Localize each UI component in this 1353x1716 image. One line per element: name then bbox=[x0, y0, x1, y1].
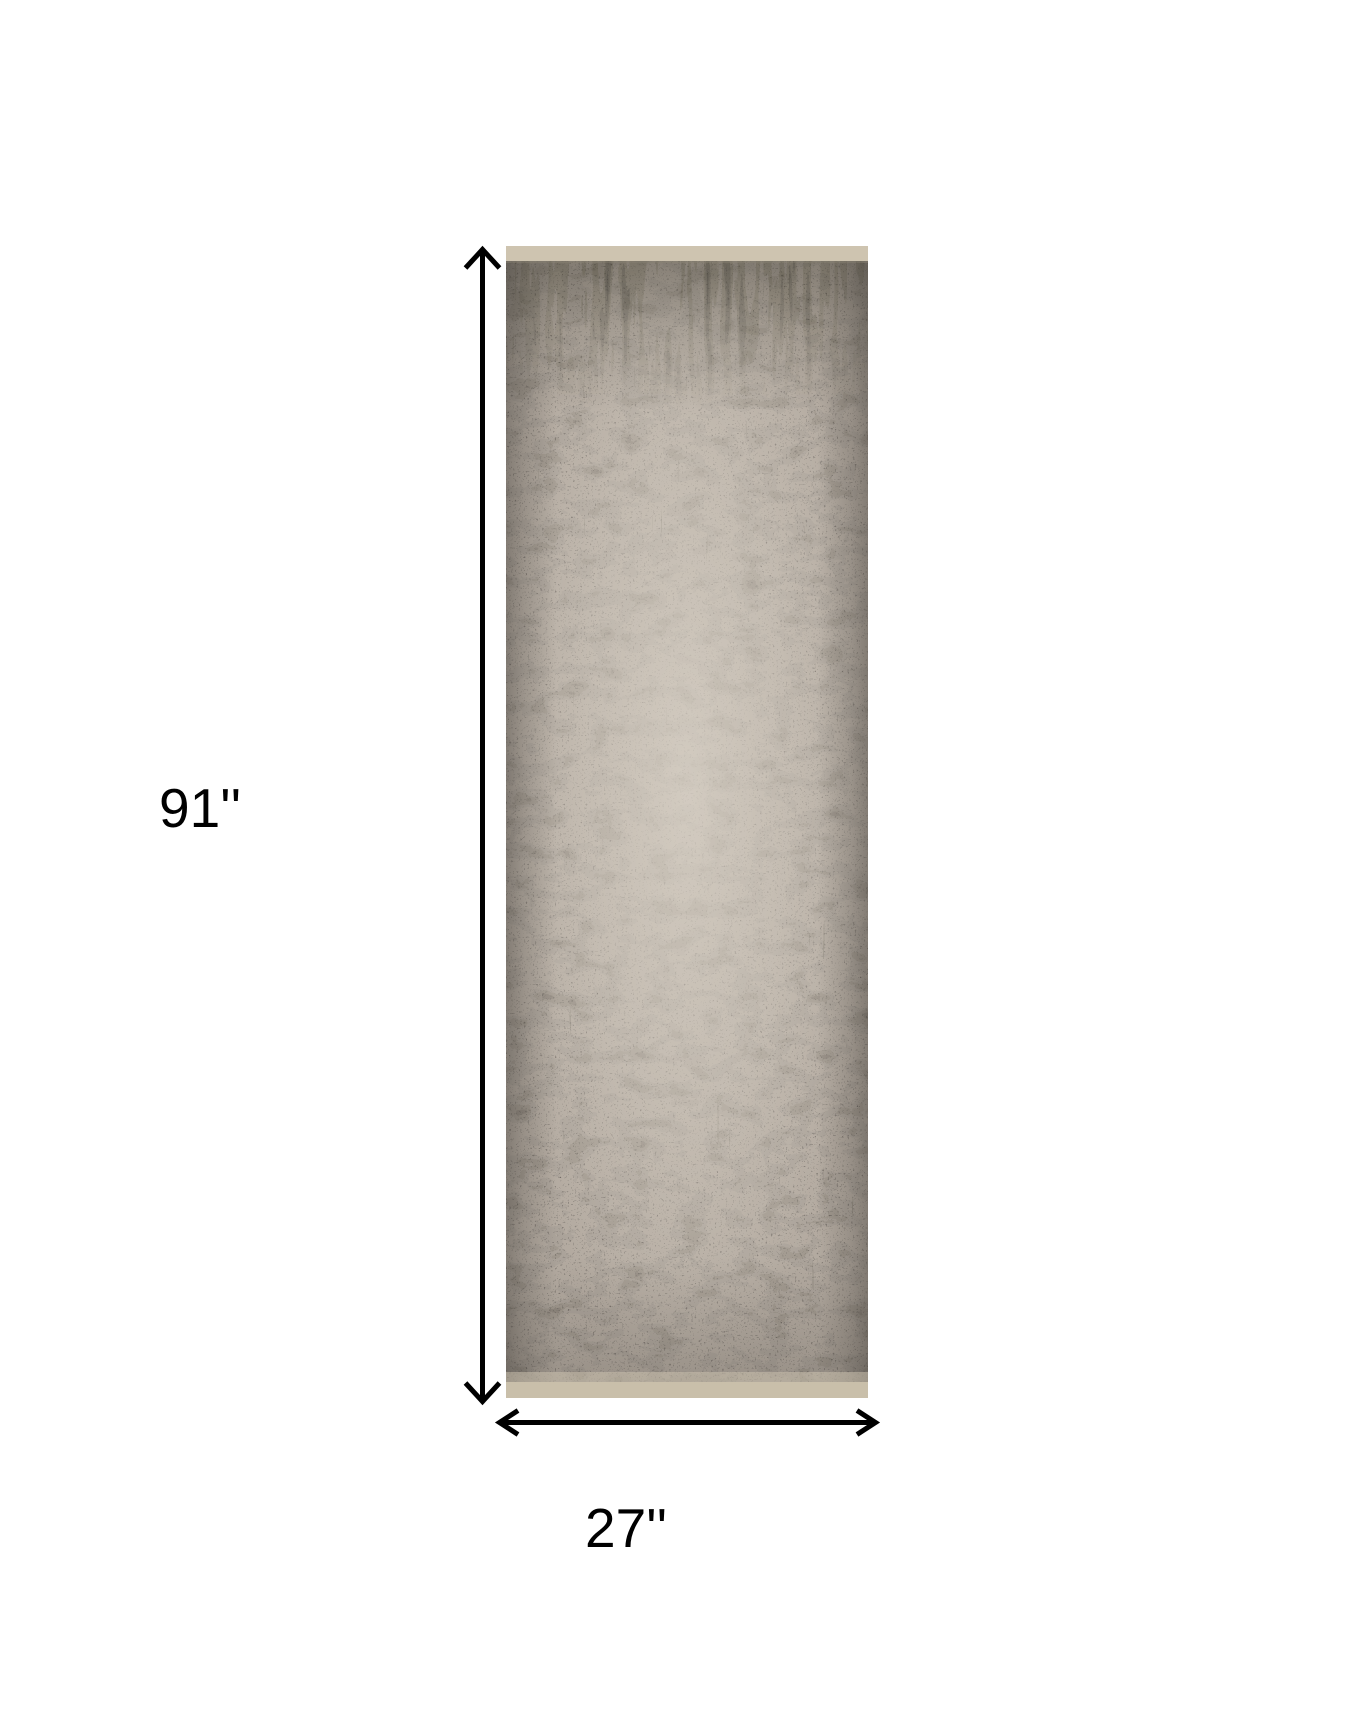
dimension-arrows bbox=[0, 0, 1353, 1716]
height-dimension-label: 91'' bbox=[159, 781, 241, 836]
height-dimension-arrow bbox=[466, 250, 500, 1402]
width-dimension-arrow bbox=[500, 1411, 876, 1435]
width-dimension-label: 27'' bbox=[585, 1501, 667, 1556]
rug-dimension-figure: 91'' 27'' bbox=[0, 0, 1353, 1716]
